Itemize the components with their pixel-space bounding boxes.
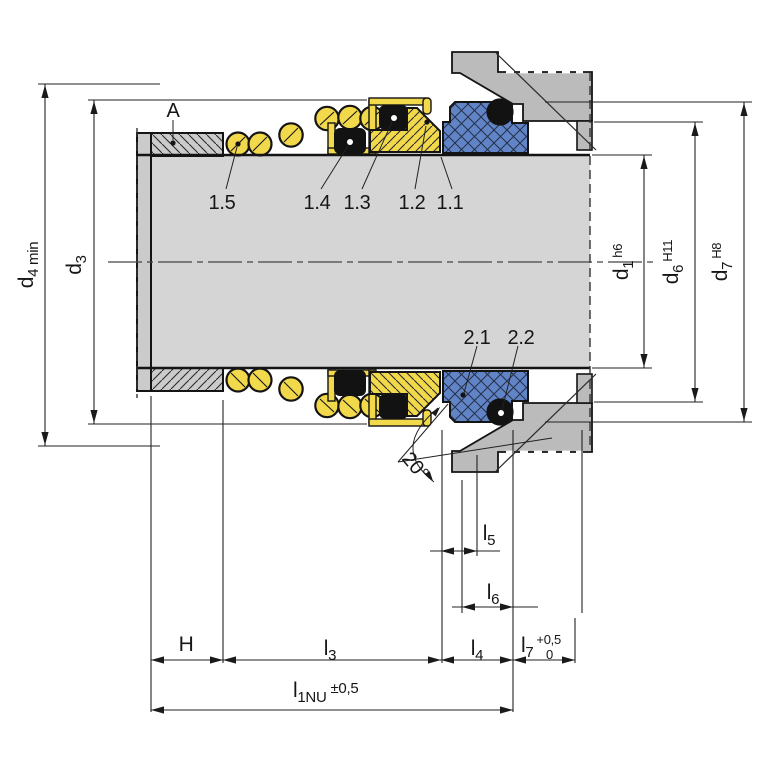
drawing-canvas: 20° A 1.5 1.4 1.3 1.2 1.1 2.1 2.2 d4 min…	[0, 0, 768, 768]
label-1-2: 1.2	[399, 192, 426, 214]
label-2-1: 2.1	[464, 327, 491, 349]
dim-label-l5: l5	[483, 522, 495, 549]
leader-dot-1-3	[391, 115, 397, 121]
seal-cross-section-drawing: 20° A 1.5 1.4 1.3 1.2 1.1 2.1 2.2 d4 min…	[0, 0, 768, 768]
dim-label-d7H8: d7H8	[709, 243, 736, 282]
dim-label-l7: l7+0,50	[521, 632, 561, 662]
leader-dot-2-2	[498, 410, 504, 416]
dim-label-l4: l4	[471, 637, 483, 664]
dim-label-l1nu: l1NU±0,5	[293, 679, 358, 706]
dim-label-H: H	[179, 633, 194, 656]
label-1-1: 1.1	[437, 192, 464, 214]
leader-dot-1-5	[235, 141, 240, 146]
leader-dot-1-2	[424, 119, 429, 124]
label-2-2: 2.2	[508, 327, 535, 349]
label-1-3: 1.3	[344, 192, 371, 214]
seal-assembly-top	[151, 52, 596, 156]
dim-label-l3: l3	[324, 637, 336, 664]
label-a: A	[166, 100, 180, 122]
leader-dot-2-1	[460, 392, 465, 397]
dim-label-l6: l6	[487, 581, 499, 608]
angle-label: 20°	[397, 448, 433, 485]
dim-label-d4min: d4 min	[15, 242, 42, 289]
seal-assembly-bottom-mirror	[151, 368, 596, 472]
leader-dot-a	[170, 140, 175, 145]
label-1-4: 1.4	[304, 192, 331, 214]
label-1-5: 1.5	[209, 192, 236, 214]
dim-label-d6H11: d6H11	[660, 240, 687, 284]
length-labels: H l3 l4 l5 l6 l7+0,50 l1NU±0,5	[179, 522, 561, 706]
dim-label-d3: d3	[63, 255, 90, 274]
leader-dot-1-4	[347, 139, 353, 145]
